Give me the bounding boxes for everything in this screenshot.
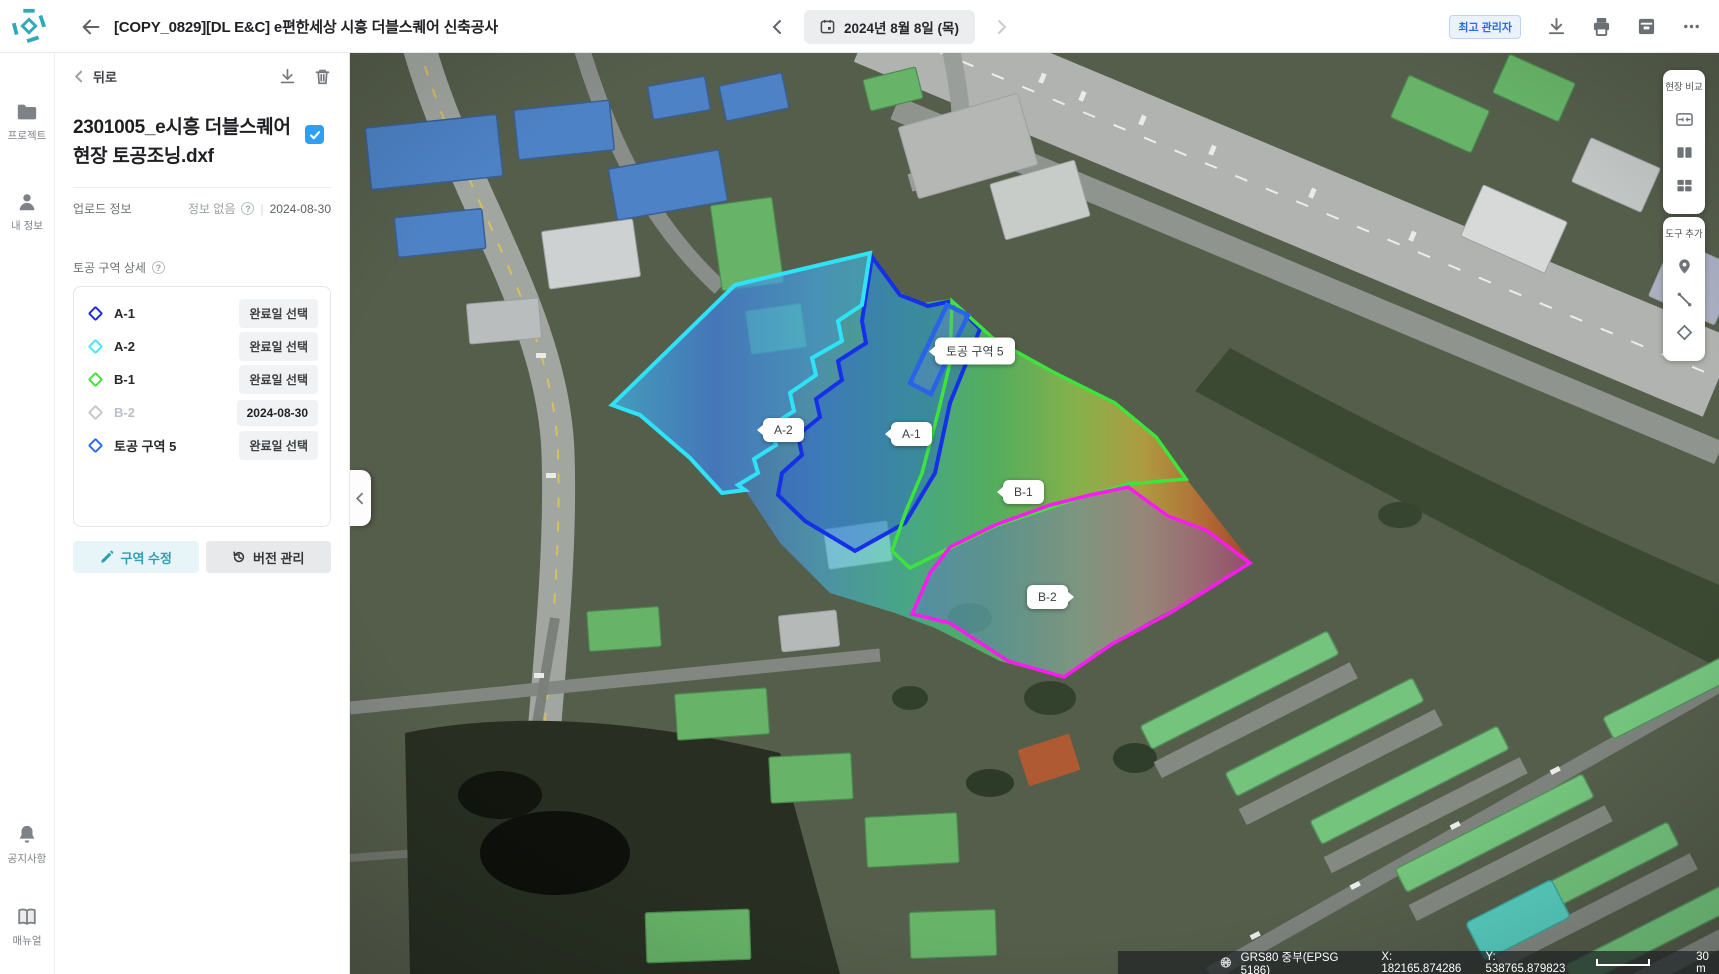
person-icon [16, 191, 38, 213]
marker-pin-tool-icon[interactable] [1676, 258, 1693, 275]
edit-zone-button[interactable]: 구역 수정 [73, 541, 199, 573]
zone-name: 토공 구역 5 [114, 436, 176, 455]
zone-name: A-1 [114, 306, 135, 321]
sidebar-item-my-info[interactable]: 내 정보 [0, 177, 55, 233]
completion-date-select-button[interactable]: 완료일 선택 [239, 431, 318, 460]
sidebar-item-notices[interactable]: 공지사항 [0, 810, 55, 866]
print-icon[interactable] [1592, 17, 1611, 36]
map-statusbar: GRS80 중부(EPSG 5186) X: 182165.874286 Y: … [1118, 951, 1719, 974]
sidebar-item-label: 공지사항 [8, 851, 47, 866]
zone-label-zone5[interactable]: 토공 구역 5 [935, 338, 1015, 365]
add-tools-panel: 도구 추가 [1663, 217, 1705, 361]
four-pane-compare-icon[interactable] [1676, 177, 1693, 194]
zone-label-a1[interactable]: A-1 [891, 422, 932, 446]
polygon-tool-icon[interactable] [1676, 324, 1693, 341]
download-icon[interactable] [1547, 17, 1566, 36]
line-measure-tool-icon[interactable] [1676, 291, 1693, 308]
zone-section-help-icon[interactable]: ? [152, 261, 165, 274]
file-name: 2301005_e시흥 더블스퀘어 현장 토공조닝.dxf [73, 113, 295, 171]
back-button[interactable]: 뒤로 [73, 67, 117, 86]
chevron-left-icon [73, 70, 86, 83]
sidebar-item-label: 프로젝트 [8, 128, 47, 143]
back-label: 뒤로 [93, 67, 117, 86]
upload-info-value: 정보 없음 [188, 200, 236, 217]
version-manage-button[interactable]: 버전 관리 [206, 541, 332, 573]
date-picker-button[interactable]: 2024년 8월 8일 (목) [804, 10, 975, 44]
project-title: [COPY_0829][DL E&C] e편한세상 시흥 더블스퀘어 신축공사 [114, 16, 498, 37]
zone-row-b1[interactable]: B-1 완료일 선택 [74, 363, 330, 396]
zone-name: B-2 [114, 405, 135, 420]
archive-icon[interactable] [1637, 17, 1656, 36]
zone-row-b2[interactable]: B-2 2024-08-30 [74, 396, 330, 429]
zone-label-b2[interactable]: B-2 [1027, 585, 1068, 609]
crs-label[interactable]: GRS80 중부(EPSG 5186) [1241, 949, 1358, 974]
two-pane-compare-icon[interactable] [1676, 144, 1693, 161]
app-logo-icon[interactable] [10, 7, 48, 45]
zone-color-diamond-icon [88, 372, 104, 388]
bell-icon [16, 824, 38, 846]
completion-date-select-button[interactable]: 완료일 선택 [239, 365, 318, 394]
file-visibility-checkbox[interactable] [305, 125, 324, 144]
upload-date: 2024-08-30 [270, 202, 331, 216]
history-icon [232, 550, 246, 564]
nav-rail: 프로젝트 내 정보 공지사항 매뉴얼 [0, 53, 55, 974]
zone-row-a2[interactable]: A-2 완료일 선택 [74, 330, 330, 363]
zone-color-diamond-icon [88, 339, 104, 355]
book-icon [16, 906, 38, 928]
zone-label-b1[interactable]: B-1 [1003, 480, 1044, 504]
more-options-icon[interactable] [1682, 17, 1701, 36]
sidebar-item-manual[interactable]: 매뉴얼 [0, 892, 55, 948]
satellite-map [350, 53, 1719, 974]
zone-color-diamond-icon [88, 405, 104, 421]
zone-name: B-1 [114, 372, 135, 387]
zone-list: A-1 완료일 선택 A-2 완료일 선택 B-1 완료일 선택 B-2 202… [73, 286, 331, 527]
zone-section-title: 토공 구역 상세 [73, 259, 146, 276]
file-detail-panel: 뒤로 2301005_e시흥 더블스퀘어 현장 토공조닝.dxf 업로드 정보 … [55, 53, 350, 974]
date-label: 2024년 8월 8일 (목) [844, 17, 959, 37]
zone-color-diamond-icon [88, 438, 104, 454]
upload-info-label: 업로드 정보 [73, 200, 132, 217]
panel-collapse-handle[interactable] [350, 470, 371, 526]
scale-bar [1596, 959, 1650, 966]
cursor-x-coordinate: X: 182165.874286 [1381, 951, 1465, 974]
prev-date-icon[interactable] [770, 19, 786, 35]
zone-row-zone5[interactable]: 토공 구역 5 완료일 선택 [74, 429, 330, 462]
folder-icon [16, 101, 38, 123]
swipe-compare-icon[interactable] [1676, 111, 1693, 128]
upload-help-icon[interactable]: ? [241, 202, 254, 215]
zone-label-a2[interactable]: A-2 [763, 418, 804, 442]
site-compare-panel: 현장 비교 [1663, 70, 1705, 214]
role-badge: 최고 관리자 [1449, 15, 1521, 39]
scale-label: 30 m [1696, 951, 1719, 974]
file-delete-icon[interactable] [314, 68, 331, 85]
top-header: [COPY_0829][DL E&C] e편한세상 시흥 더블스퀘어 신축공사 … [0, 0, 1719, 53]
next-date-icon[interactable] [993, 19, 1009, 35]
calendar-icon [820, 19, 835, 34]
sidebar-item-label: 매뉴얼 [13, 933, 42, 948]
check-icon [309, 129, 321, 141]
site-compare-title: 현장 비교 [1665, 79, 1703, 93]
app-root: [COPY_0829][DL E&C] e편한세상 시흥 더블스퀘어 신축공사 … [0, 0, 1719, 974]
separator: | [260, 202, 263, 216]
zone-row-a1[interactable]: A-1 완료일 선택 [74, 297, 330, 330]
sidebar-item-projects[interactable]: 프로젝트 [0, 87, 55, 143]
map-viewport[interactable]: A-2 A-1 B-1 B-2 토공 구역 5 현장 비교 도구 추가 GRS8… [350, 53, 1719, 974]
back-arrow-icon[interactable] [80, 16, 102, 38]
sidebar-item-label: 내 정보 [11, 218, 43, 233]
completion-date-button[interactable]: 2024-08-30 [237, 400, 318, 426]
version-manage-label: 버전 관리 [253, 548, 304, 567]
pencil-icon [100, 550, 114, 564]
chevron-left-icon [354, 492, 367, 505]
cursor-y-coordinate: Y: 538765.879823 [1485, 951, 1569, 974]
completion-date-select-button[interactable]: 완료일 선택 [239, 332, 318, 361]
add-tools-title: 도구 추가 [1665, 226, 1703, 240]
globe-icon [1220, 956, 1232, 969]
file-download-icon[interactable] [279, 68, 296, 85]
completion-date-select-button[interactable]: 완료일 선택 [239, 299, 318, 328]
edit-zone-label: 구역 수정 [121, 548, 172, 567]
zone-color-diamond-icon [88, 306, 104, 322]
zone-name: A-2 [114, 339, 135, 354]
